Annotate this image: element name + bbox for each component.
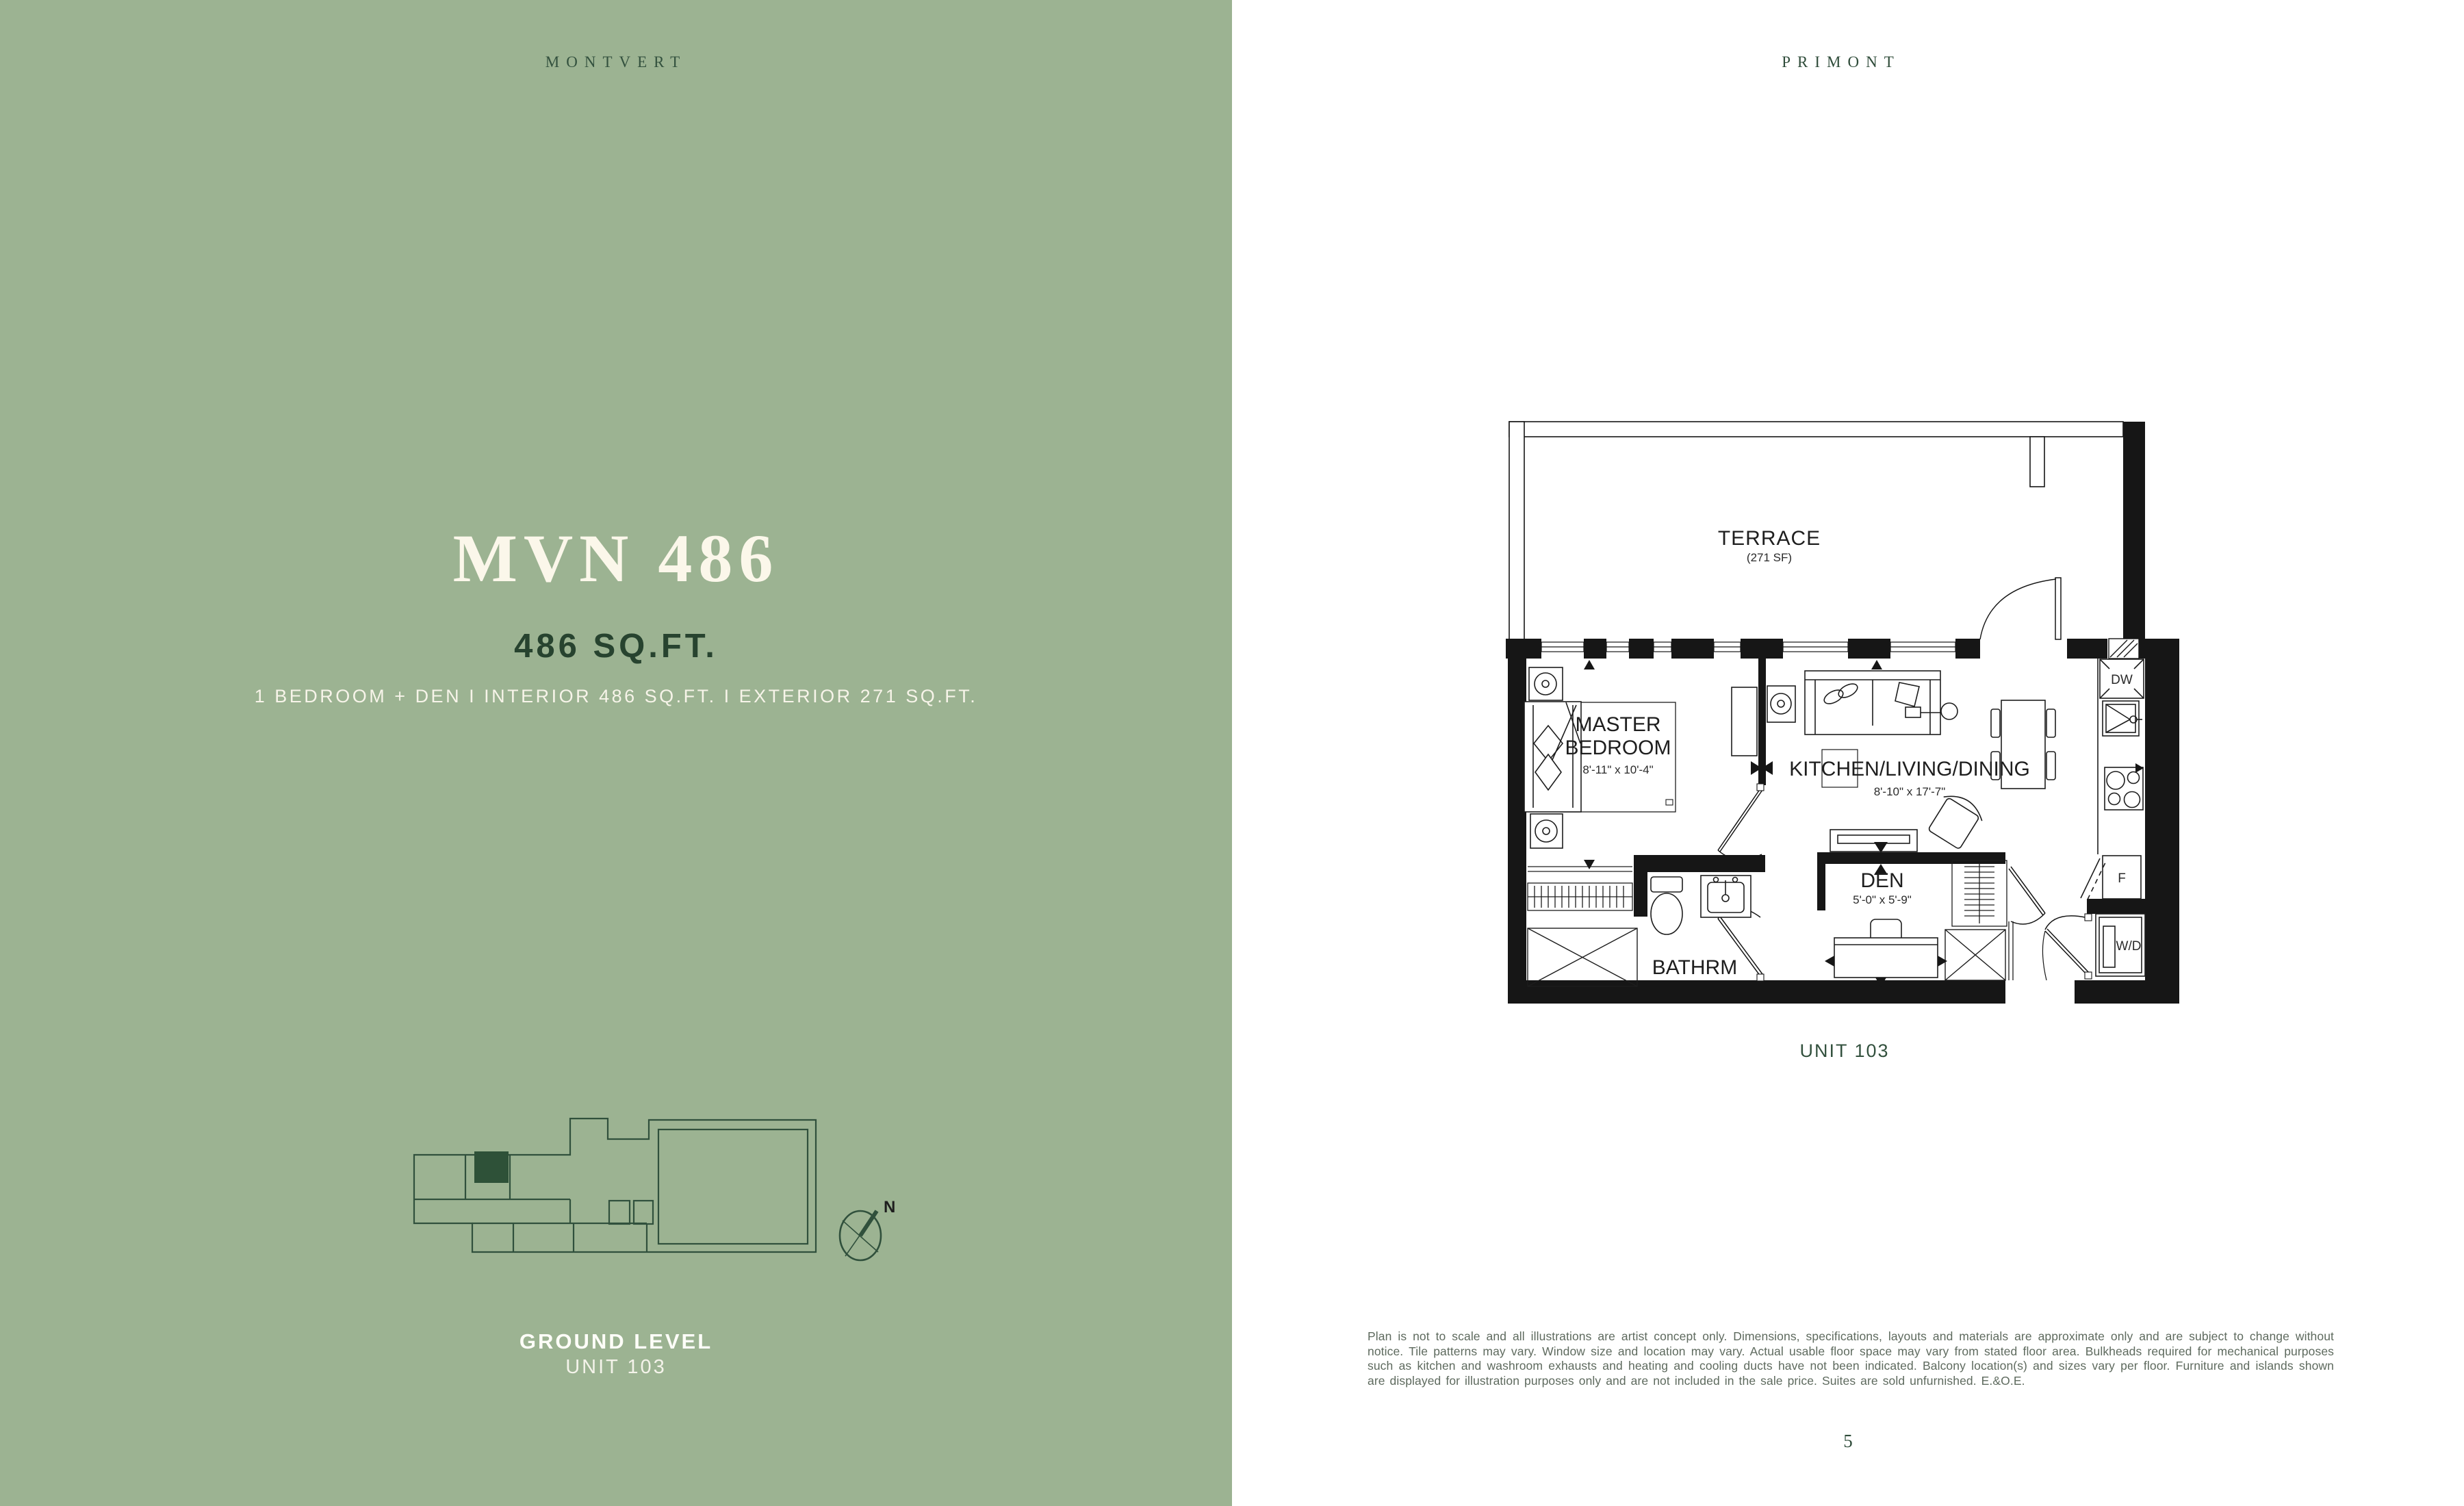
hanging-closet (1952, 860, 2007, 926)
kitchen-living-dining-label: KITCHEN/LIVING/DINING (1789, 758, 2030, 780)
cooktop-icon (2105, 767, 2143, 810)
brand-primont: PRIMONT (1738, 53, 1944, 71)
kitchen-strip (2081, 659, 2145, 976)
dresser (1732, 687, 1757, 756)
unit-detail-line: 1 BEDROOM + DEN I INTERIOR 486 SQ.FT. I … (0, 686, 1232, 707)
disclaimer-text: Plan is not to scale and all illustratio… (1368, 1329, 2334, 1388)
brochure-page: MONTVERT MVN 486 486 SQ.FT. 1 BEDROOM + … (0, 0, 2464, 1506)
bathroom-label: BATHRM (1652, 956, 1737, 979)
floor-plan: TERRACE (271 SF) (1499, 404, 2190, 1020)
master-bedroom-dims: 8'-11" x 10'-4" (1582, 763, 1653, 776)
toilet-icon (1651, 877, 1682, 934)
fridge (2081, 856, 2141, 899)
bedroom-closet (1528, 867, 1632, 910)
hatched-column (2109, 639, 2139, 659)
window-markers (1584, 660, 1882, 669)
fridge-label: F (2118, 871, 2126, 886)
ceiling-light-icon (1530, 814, 1563, 848)
media-console (1830, 830, 1917, 852)
compass-north-label: N (884, 1198, 895, 1216)
brand-montvert: MONTVERT (411, 53, 821, 71)
dishwasher-label: DW (2111, 673, 2133, 687)
unit-model-title: MVN 486 (0, 519, 1232, 598)
ceiling-light-icon (1529, 667, 1563, 700)
keyplan-building-outline (414, 1119, 816, 1252)
den-label: DEN (1860, 869, 1903, 892)
washer-dryer-label: W/D (2116, 939, 2142, 954)
compass: N (825, 1195, 914, 1273)
terrace-label: TERRACE (1718, 527, 1821, 550)
kitchen-living-dining-dims: 8'-10" x 17'-7" (1874, 785, 1946, 798)
bathroom (1651, 876, 1751, 934)
bedroom-door (1718, 784, 1764, 860)
armchair (1925, 789, 1987, 852)
left-panel: MONTVERT MVN 486 486 SQ.FT. 1 BEDROOM + … (0, 0, 1232, 1506)
page-number: 5 (1821, 1431, 1875, 1452)
kitchen-sink-icon (2103, 701, 2142, 736)
den-dims: 5'-0" x 5'-9" (1853, 893, 1912, 906)
keyplan (404, 1103, 883, 1275)
master-bedroom-label-2: BEDROOM (1565, 737, 1671, 759)
desk (1834, 938, 1938, 978)
area-headline: 486 SQ.FT. (0, 627, 1232, 665)
level-label: GROUND LEVEL (0, 1329, 1232, 1354)
unit-number-caption: UNIT 103 (1499, 1041, 2190, 1062)
entry-door (2042, 914, 2092, 980)
sink-icon (1701, 876, 1751, 917)
master-bedroom-label-1: MASTER (1575, 713, 1660, 736)
compass-needle (860, 1211, 877, 1236)
ceiling-light-icon (1767, 686, 1795, 722)
sofa (1805, 671, 1940, 735)
den-door (2009, 867, 2045, 924)
den-closet (1945, 930, 2005, 980)
terrace-right-wall (2123, 422, 2145, 640)
terrace-door (1980, 578, 2061, 639)
terrace-area: (271 SF) (1747, 551, 1792, 564)
unit-number-left: UNIT 103 (0, 1356, 1232, 1379)
storage-locker (1528, 928, 1637, 986)
keyplan-highlighted-unit (474, 1151, 509, 1183)
